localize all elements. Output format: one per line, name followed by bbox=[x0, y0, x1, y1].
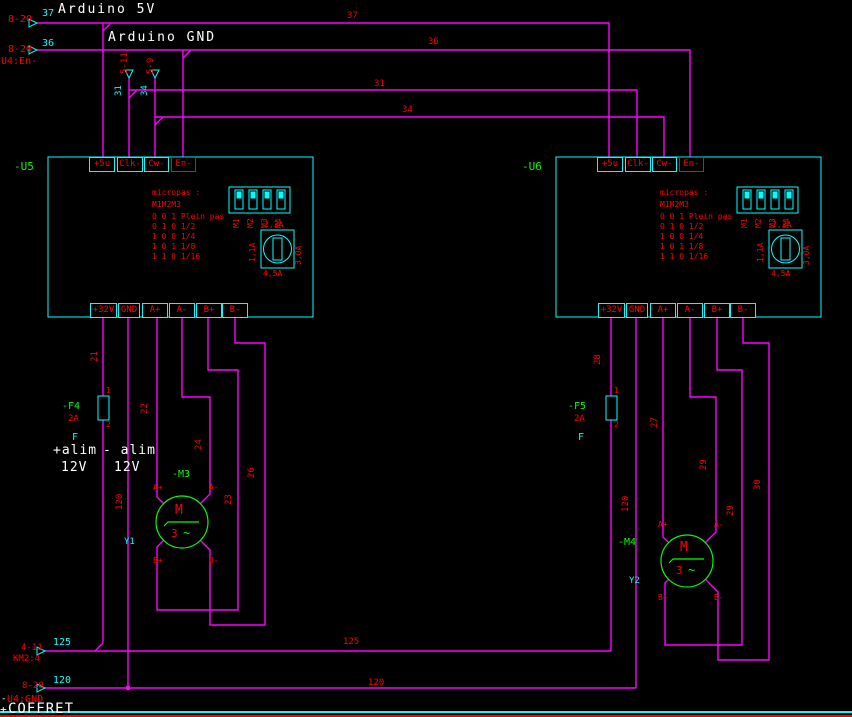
u5-dip-label: M2 bbox=[247, 218, 255, 228]
u5-micro-title: micropas : bbox=[152, 189, 200, 197]
f5-pin-1: 1 bbox=[614, 387, 619, 395]
u5-term-32v[interactable]: +32V bbox=[90, 303, 117, 318]
m4-ac-tilde: ~ bbox=[688, 564, 695, 576]
m3-motor-letter: M bbox=[175, 504, 183, 517]
wire-m4-a-minus[interactable] bbox=[690, 317, 716, 543]
u6-term-gnd[interactable]: GND bbox=[626, 303, 648, 318]
arduino-gnd-title: Arduino GND bbox=[108, 31, 216, 44]
u6-micro-row: 0 1 0 1/2 bbox=[660, 223, 703, 231]
arduino-5v-title: Arduino 5V bbox=[58, 3, 156, 16]
u6-dip-switch[interactable] bbox=[737, 187, 798, 213]
u5-rotary-top: 2,2A bbox=[264, 221, 283, 229]
m4-a-plus-label: A+ bbox=[658, 521, 668, 529]
schematic-canvas: Arduino 5V Arduino GND 8-20 37 8-20 U4:E… bbox=[0, 0, 852, 717]
supply-plus-volt: 12V bbox=[61, 461, 87, 474]
u6-term-5v[interactable]: +5u bbox=[597, 157, 623, 172]
u6-term-clk[interactable]: Clk- bbox=[625, 157, 651, 172]
m4-b-plus-label: B+ bbox=[658, 594, 668, 602]
u6-dip-label: M2 bbox=[755, 218, 763, 228]
u5-rotary-left: 1,1A bbox=[249, 243, 257, 262]
wire-31-mid-label: 31 bbox=[374, 80, 385, 89]
wire-24-number: 24 bbox=[195, 439, 204, 450]
f5-type: F bbox=[578, 433, 584, 443]
f4-pin-1: 1 bbox=[106, 387, 111, 395]
wire-34-mid-label: 34 bbox=[402, 106, 413, 115]
wire-125-mid-label: 125 bbox=[343, 638, 359, 647]
xref-37-source[interactable]: 8-20 bbox=[8, 15, 32, 25]
f5-pin-2: 2 bbox=[614, 421, 619, 429]
u5-term-en[interactable]: En- bbox=[171, 157, 196, 172]
supply-plus-label: +alim bbox=[53, 444, 97, 457]
m3-a-minus-label: A- bbox=[209, 484, 219, 492]
u5-rotary-switch[interactable] bbox=[261, 230, 294, 268]
wire-27-number: 27 bbox=[651, 417, 660, 428]
u5-term-gnd[interactable]: GND bbox=[118, 303, 140, 318]
m4-b-minus-label: B- bbox=[714, 594, 724, 602]
u5-term-clk[interactable]: Clk- bbox=[117, 157, 143, 172]
f5-ref-label: -F5 bbox=[568, 402, 586, 412]
f5-rating: 2A bbox=[574, 415, 585, 424]
wire-network[interactable] bbox=[37, 23, 769, 690]
wire-29-number-b: 29 bbox=[727, 505, 736, 516]
wire-22-number: 22 bbox=[141, 403, 150, 414]
wire-29-number: 29 bbox=[700, 459, 709, 470]
wire-m3-a-plus[interactable] bbox=[157, 317, 164, 504]
wire-120-number-left: 120 bbox=[116, 494, 125, 510]
m4-motor-letter: M bbox=[680, 541, 688, 554]
u5-dip-switch[interactable] bbox=[229, 187, 290, 213]
u6-ref-label: -U6 bbox=[522, 161, 542, 172]
u6-term-a-plus[interactable]: A+ bbox=[650, 303, 676, 318]
u5-micro-row: 0 1 0 1/2 bbox=[152, 223, 195, 231]
u5-rotary-right: 3,0A bbox=[295, 246, 303, 265]
m3-underline bbox=[164, 522, 199, 526]
wire-36[interactable] bbox=[37, 50, 690, 157]
u5-term-a-plus[interactable]: A+ bbox=[142, 303, 168, 318]
m4-underline bbox=[669, 559, 704, 563]
m4-ref-label: -M4 bbox=[618, 538, 636, 548]
xref-36-source[interactable]: 8-20 bbox=[8, 45, 32, 55]
f4-rating: 2A bbox=[68, 415, 79, 424]
u6-micro-head: M1M2M3 bbox=[660, 201, 689, 209]
f4-ref-label: -F4 bbox=[62, 402, 80, 412]
xref-125-device[interactable]: KM2:4 bbox=[13, 655, 40, 664]
u6-term-b-plus[interactable]: B+ bbox=[704, 303, 730, 318]
m3-phase-count: 3 bbox=[171, 528, 178, 539]
u6-rotary-right: 3,0A bbox=[803, 246, 811, 265]
u6-micro-row: 1 0 1 1/8 bbox=[660, 243, 703, 251]
m3-b-minus-label: B- bbox=[209, 557, 219, 565]
wire-26-number: 26 bbox=[248, 467, 257, 478]
u6-rotary-switch[interactable] bbox=[769, 230, 802, 268]
junction-dot bbox=[126, 686, 131, 691]
wire-28-number: 28 bbox=[594, 354, 603, 365]
wire-36-number: 36 bbox=[42, 39, 54, 49]
f4-pin-2: 2 bbox=[106, 421, 111, 429]
u6-micro-row: 1 1 0 1/16 bbox=[660, 253, 708, 261]
wire-37-number: 37 bbox=[42, 9, 54, 19]
m4-a-minus-label: A- bbox=[714, 521, 724, 529]
f4-fuse-symbol[interactable] bbox=[98, 396, 109, 420]
u5-micro-row: 0 0 1 Plein pas bbox=[152, 213, 224, 221]
u6-micro-row: 1 0 0 1/4 bbox=[660, 233, 703, 241]
u6-rotary-bottom: 4,5A bbox=[771, 270, 790, 278]
m3-b-plus-label: B+ bbox=[153, 557, 163, 565]
u6-rotary-top: 2,2A bbox=[772, 221, 791, 229]
u6-term-32v[interactable]: +32V bbox=[598, 303, 625, 318]
xref-120-dest[interactable]: 8-20 bbox=[22, 682, 44, 691]
xref-34-source[interactable]: 5-9 bbox=[147, 58, 156, 74]
u5-dip-label: M1 bbox=[233, 218, 241, 228]
wire-m3-b-plus[interactable] bbox=[157, 317, 238, 610]
wire-120-mid-label: 120 bbox=[368, 679, 384, 688]
m3-ac-tilde: ~ bbox=[183, 527, 190, 539]
location-prefix-mark: + bbox=[0, 704, 7, 715]
f4-type: F bbox=[72, 433, 78, 443]
u6-term-cw[interactable]: Cw- bbox=[652, 157, 677, 172]
supply-minus-label: - alim bbox=[103, 444, 156, 457]
u5-term-5v[interactable]: +5u bbox=[89, 157, 115, 172]
wire-37-mid-label: 37 bbox=[347, 12, 358, 21]
wiring-svg bbox=[0, 0, 852, 717]
u5-rotary-bottom: 4,5A bbox=[263, 270, 282, 278]
wire-m4-a-plus[interactable] bbox=[663, 317, 669, 543]
supply-minus-volt: 12V bbox=[114, 461, 140, 474]
u6-term-a-minus[interactable]: A- bbox=[677, 303, 703, 318]
xref-31-source[interactable]: 5-11 bbox=[121, 52, 130, 74]
wire-120-number-right: 120 bbox=[622, 496, 631, 512]
wire-120-number: 120 bbox=[53, 676, 71, 686]
wire-34-number: 34 bbox=[141, 85, 150, 96]
wire-36-mid-label: 36 bbox=[428, 38, 439, 47]
u5-term-cw[interactable]: Cw- bbox=[144, 157, 169, 172]
location-label: COFFRET bbox=[8, 702, 74, 716]
u6-micro-title: micropas : bbox=[660, 189, 708, 197]
u5-term-a-minus[interactable]: A- bbox=[169, 303, 195, 318]
m4-y2-label: Y2 bbox=[629, 577, 640, 586]
u5-ref-label: -U5 bbox=[14, 161, 34, 172]
m4-phase-count: 3 bbox=[676, 565, 683, 576]
u6-dip-label: M1 bbox=[741, 218, 749, 228]
u6-term-b-minus[interactable]: B- bbox=[730, 303, 756, 318]
wire-21-number: 21 bbox=[91, 351, 100, 362]
m3-y1-label: Y1 bbox=[124, 538, 135, 547]
wire-31-number: 31 bbox=[115, 85, 124, 96]
m3-ref-label: -M3 bbox=[172, 470, 190, 480]
u5-term-b-minus[interactable]: B- bbox=[222, 303, 248, 318]
u5-micro-row: 1 0 1 1/8 bbox=[152, 243, 195, 251]
f5-fuse-symbol[interactable] bbox=[606, 396, 617, 420]
wire-30-number: 30 bbox=[754, 479, 763, 490]
u5-micro-head: M1M2M3 bbox=[152, 201, 181, 209]
u5-micro-row: 1 0 0 1/4 bbox=[152, 233, 195, 241]
m3-a-plus-label: A+ bbox=[153, 484, 163, 492]
wire-125-number: 125 bbox=[53, 638, 71, 648]
wire-36-branch-u5[interactable] bbox=[183, 50, 191, 157]
u6-rotary-left: 1,1A bbox=[757, 243, 765, 262]
u6-micro-row: 0 0 1 Plein pas bbox=[660, 213, 732, 221]
xref-36-dest[interactable]: U4:En- bbox=[1, 57, 37, 67]
wire-m4-b-plus[interactable] bbox=[665, 317, 742, 645]
u5-micro-row: 1 1 0 1/16 bbox=[152, 253, 200, 261]
wire-23-number: 23 bbox=[225, 494, 234, 505]
xref-125-dest[interactable]: 4-11 bbox=[21, 644, 43, 653]
u5-term-b-plus[interactable]: B+ bbox=[196, 303, 222, 318]
u6-term-en[interactable]: En- bbox=[679, 157, 704, 172]
